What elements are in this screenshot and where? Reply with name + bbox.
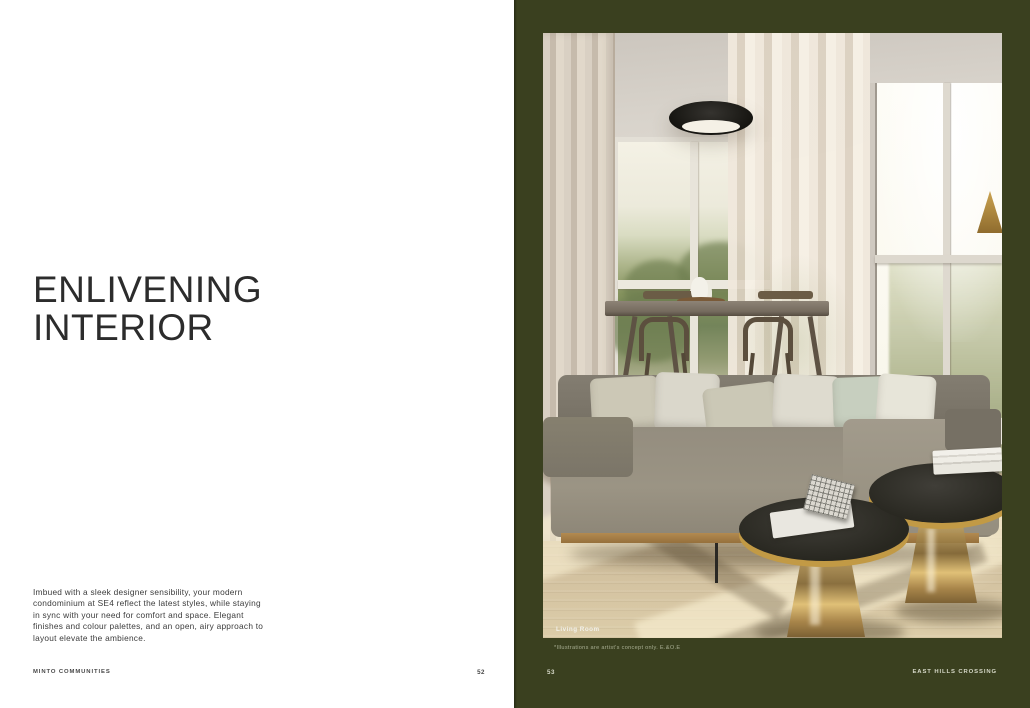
photo-sofa-armrest xyxy=(543,417,633,477)
page-gutter-shadow xyxy=(514,0,517,708)
photo-pillow xyxy=(772,373,841,432)
living-room-photo: Living Room xyxy=(543,33,1002,638)
page-headline: ENLIVENING INTERIOR xyxy=(33,271,262,347)
left-page: ENLIVENING INTERIOR Imbued with a sleek … xyxy=(0,0,514,708)
photo-sofa-armrest xyxy=(945,409,1001,451)
photo-caption: Living Room xyxy=(556,626,600,633)
intro-paragraph: Imbued with a sleek designer sensibility… xyxy=(33,587,283,644)
photo-dining-chair xyxy=(758,291,813,299)
photo-sofa-leg xyxy=(715,543,718,583)
right-page: Living Room *Illustrations are artist's … xyxy=(514,0,1030,708)
disclaimer: *Illustrations are artist's concept only… xyxy=(554,645,680,651)
brochure-spread: ENLIVENING INTERIOR Imbued with a sleek … xyxy=(0,0,1030,708)
page-number-left: 52 xyxy=(455,669,485,676)
photo-ceiling-lamp xyxy=(669,101,753,135)
photo-book-stack xyxy=(932,447,1002,475)
project-footer: EAST HILLS CROSSING xyxy=(912,669,997,675)
page-number-right: 53 xyxy=(547,669,555,676)
photo-dining-table xyxy=(605,301,829,316)
brand-footer: MINTO COMMUNITIES xyxy=(33,669,111,675)
